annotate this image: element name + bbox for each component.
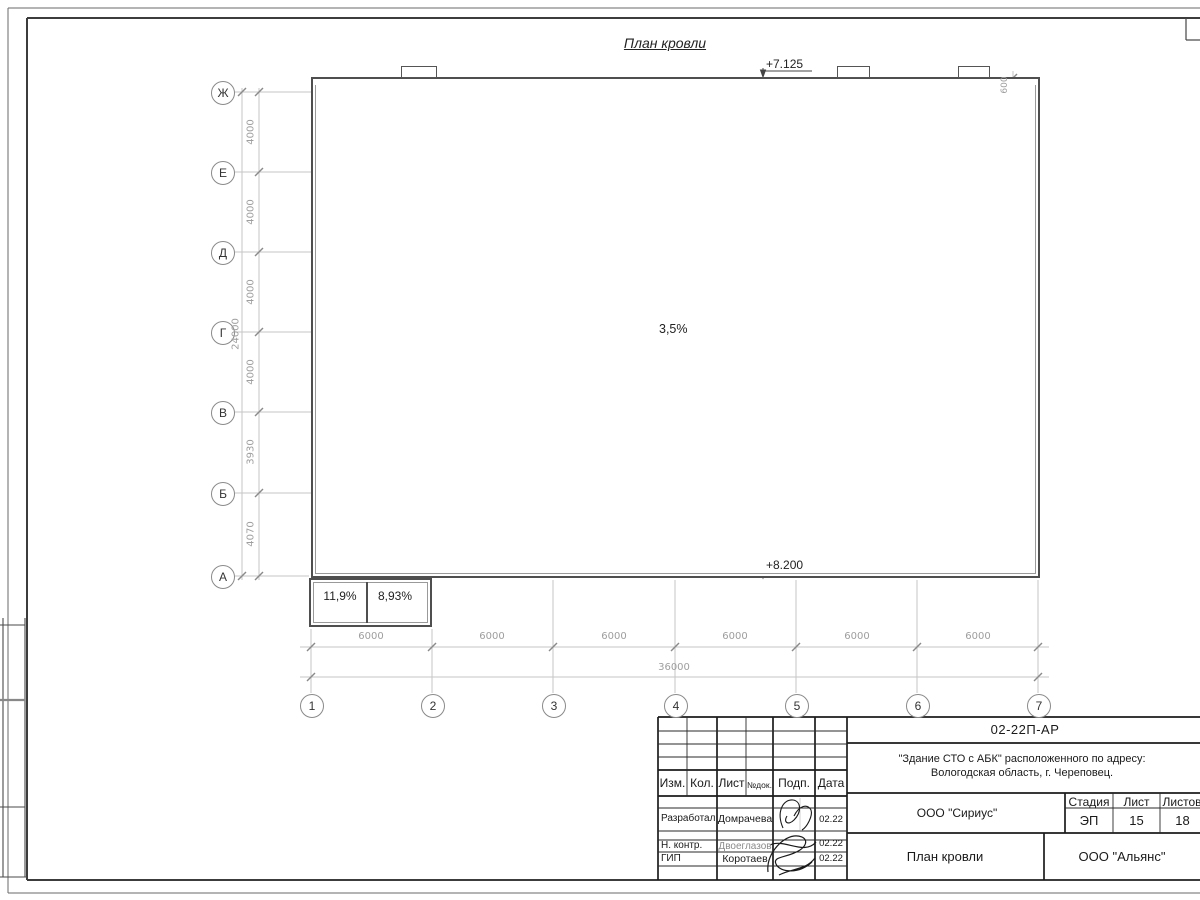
dim-row-3: 4000 [246,279,257,304]
titleblock-col-sign: Подп. [773,776,815,790]
roof-hatch-1 [401,66,437,78]
axis-col-3: 3 [542,694,566,718]
dim-col-6: 6000 [948,631,1008,642]
titleblock-designer-org: ООО "Сириус" [857,806,1057,820]
axis-row-b: Б [211,482,235,506]
titleblock-col-kol: Кол. [687,776,717,790]
titleblock-date-gip: 02.22 [815,853,847,864]
dim-row-4: 4000 [246,359,257,384]
axis-col-6: 6 [906,694,930,718]
axis-col-5: 5 [785,694,809,718]
dim-col-total: 36000 [644,662,704,673]
titleblock-date-ncontrol: 02.22 [815,838,847,849]
dim-col-4: 6000 [705,631,765,642]
titleblock-sheet-title: План кровли [850,849,1040,864]
annex-slope-left-label: 11,9% [318,589,362,603]
titleblock-name-ncontrol: Двоеглазов [717,841,773,852]
titleblock-sheet-value: 15 [1114,813,1159,828]
main-slope-label: 3,5% [659,322,688,336]
axis-row-a: А [211,565,235,589]
titleblock-stage-value: ЭП [1066,813,1112,828]
row-axis-lines [233,92,311,576]
titleblock-name-developer: Домрачева [717,813,773,825]
signature-developer [780,800,811,830]
titleblock-col-doc: №док. [746,780,773,790]
dim-col-5: 6000 [827,631,887,642]
titleblock-stage-header: Стадия [1066,795,1112,809]
annex-slope-right-label: 8,93% [372,589,418,603]
titleblock-sheets-value: 18 [1160,813,1200,828]
axis-row-zh: Ж [211,81,235,105]
elevation-top-label: +7.125 [766,57,803,71]
margin-stamp-table [0,618,27,877]
dim-parapet-600: 600 [1000,76,1010,93]
titleblock-project-line2: Вологодская область, г. Череповец. [852,767,1192,779]
dim-row-2: 4000 [246,199,257,224]
titleblock-sheets-header: Листов [1162,795,1200,809]
elevation-bottom-label: +8.200 [766,558,803,572]
roof-hatch-3 [958,66,990,78]
axis-row-e: Е [211,161,235,185]
titleblock-role-ncontrol: Н. контр. [661,840,717,851]
roof-hatch-2 [837,66,870,78]
signature-gip [768,836,816,875]
drawing-sheet: План кровли 11,9% 8,93% +7.125 +8.200 3,… [0,0,1200,900]
titleblock-name-gip: Коротаев [717,853,773,865]
axis-col-1: 1 [300,694,324,718]
titleblock-col-date: Дата [815,776,847,790]
axis-col-7: 7 [1027,694,1051,718]
annex-divider [366,582,368,623]
dim-col-2: 6000 [462,631,522,642]
titleblock-role-developer: Разработал [661,813,717,824]
drawing-title: План кровли [585,35,745,51]
titleblock-role-gip: ГИП [661,853,717,864]
axis-row-v: В [211,401,235,425]
axis-row-d: Д [211,241,235,265]
dim-row-5: 3930 [246,439,257,464]
axis-col-4: 4 [664,694,688,718]
titleblock-date-developer: 02.22 [815,814,847,825]
dim-col-1: 6000 [341,631,401,642]
titleblock-col-list: Лист [717,776,746,790]
titleblock-project-line1: "Здание СТО с АБК" расположенного по адр… [852,753,1192,765]
titleblock-col-izm: Изм. [658,776,687,790]
dim-row-6: 4070 [246,521,257,546]
corner-doc-box [1186,18,1200,40]
dim-row-total: 24000 [231,318,242,350]
titleblock-sheet-header: Лист [1114,795,1159,809]
dim-col-3: 6000 [584,631,644,642]
dim-row-1: 4000 [246,119,257,144]
titleblock-client-org: ООО "Альянс" [1046,849,1198,864]
titleblock-doc-number: 02-22П-АР [860,722,1190,737]
axis-col-2: 2 [421,694,445,718]
